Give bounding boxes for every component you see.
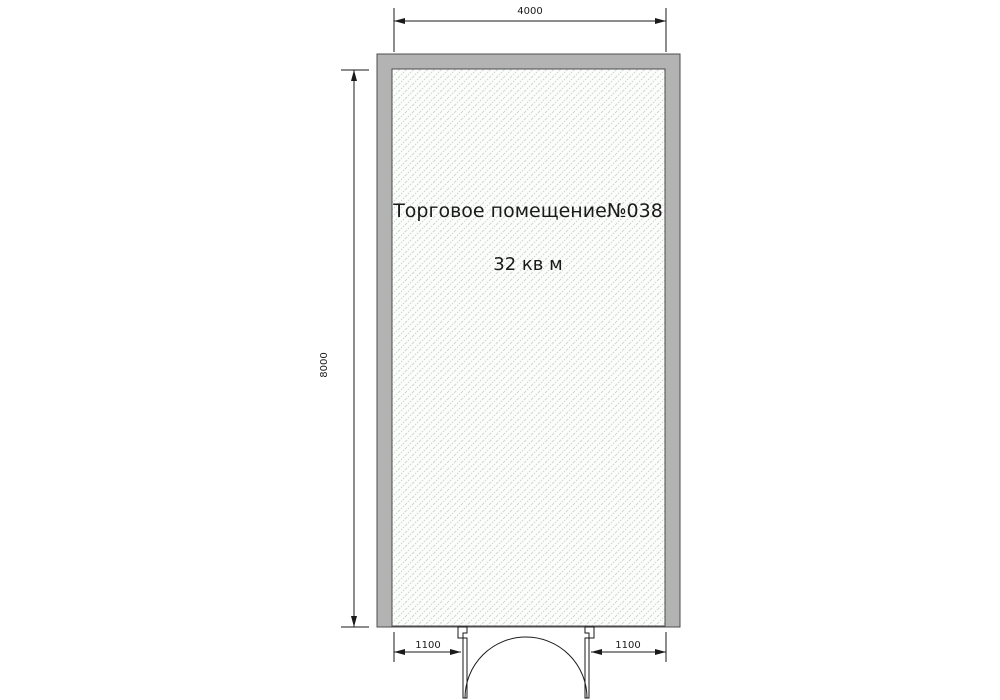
floor-plan-drawing: 4000 8000 1100 (0, 0, 1000, 700)
dimension-door-right: 1100 (591, 632, 666, 662)
door-leaf-left (463, 638, 467, 698)
room-area-label: 32 кв м (493, 254, 562, 275)
door-jamb-left (458, 627, 467, 638)
door-leaf-right (585, 638, 589, 698)
door-swing-arc-left (465, 637, 526, 698)
dimension-label-left: 8000 (319, 352, 330, 377)
arrowhead-right (450, 649, 461, 655)
interior-hatch-area (392, 69, 665, 626)
arrowhead-bottom (351, 616, 357, 627)
floor-plan-canvas: 4000 8000 1100 (0, 0, 1000, 700)
door-swing-arc-right (526, 637, 587, 698)
door-jamb-right (585, 627, 594, 638)
dimension-door-left: 1100 (394, 632, 461, 662)
dimension-left-height: 8000 (319, 70, 369, 627)
room-name-label: Торговое помещение№038 (392, 200, 663, 222)
dimension-label-door-left: 1100 (415, 640, 440, 651)
dimension-label-door-right: 1100 (615, 640, 640, 651)
arrowhead-left (394, 18, 405, 24)
arrowhead-left (394, 649, 405, 655)
arrowhead-left (591, 649, 602, 655)
dimension-top-width: 4000 (394, 6, 666, 52)
arrowhead-right (655, 649, 666, 655)
arrowhead-right (655, 18, 666, 24)
arrowhead-top (351, 70, 357, 81)
dimension-label-top: 4000 (517, 6, 542, 17)
